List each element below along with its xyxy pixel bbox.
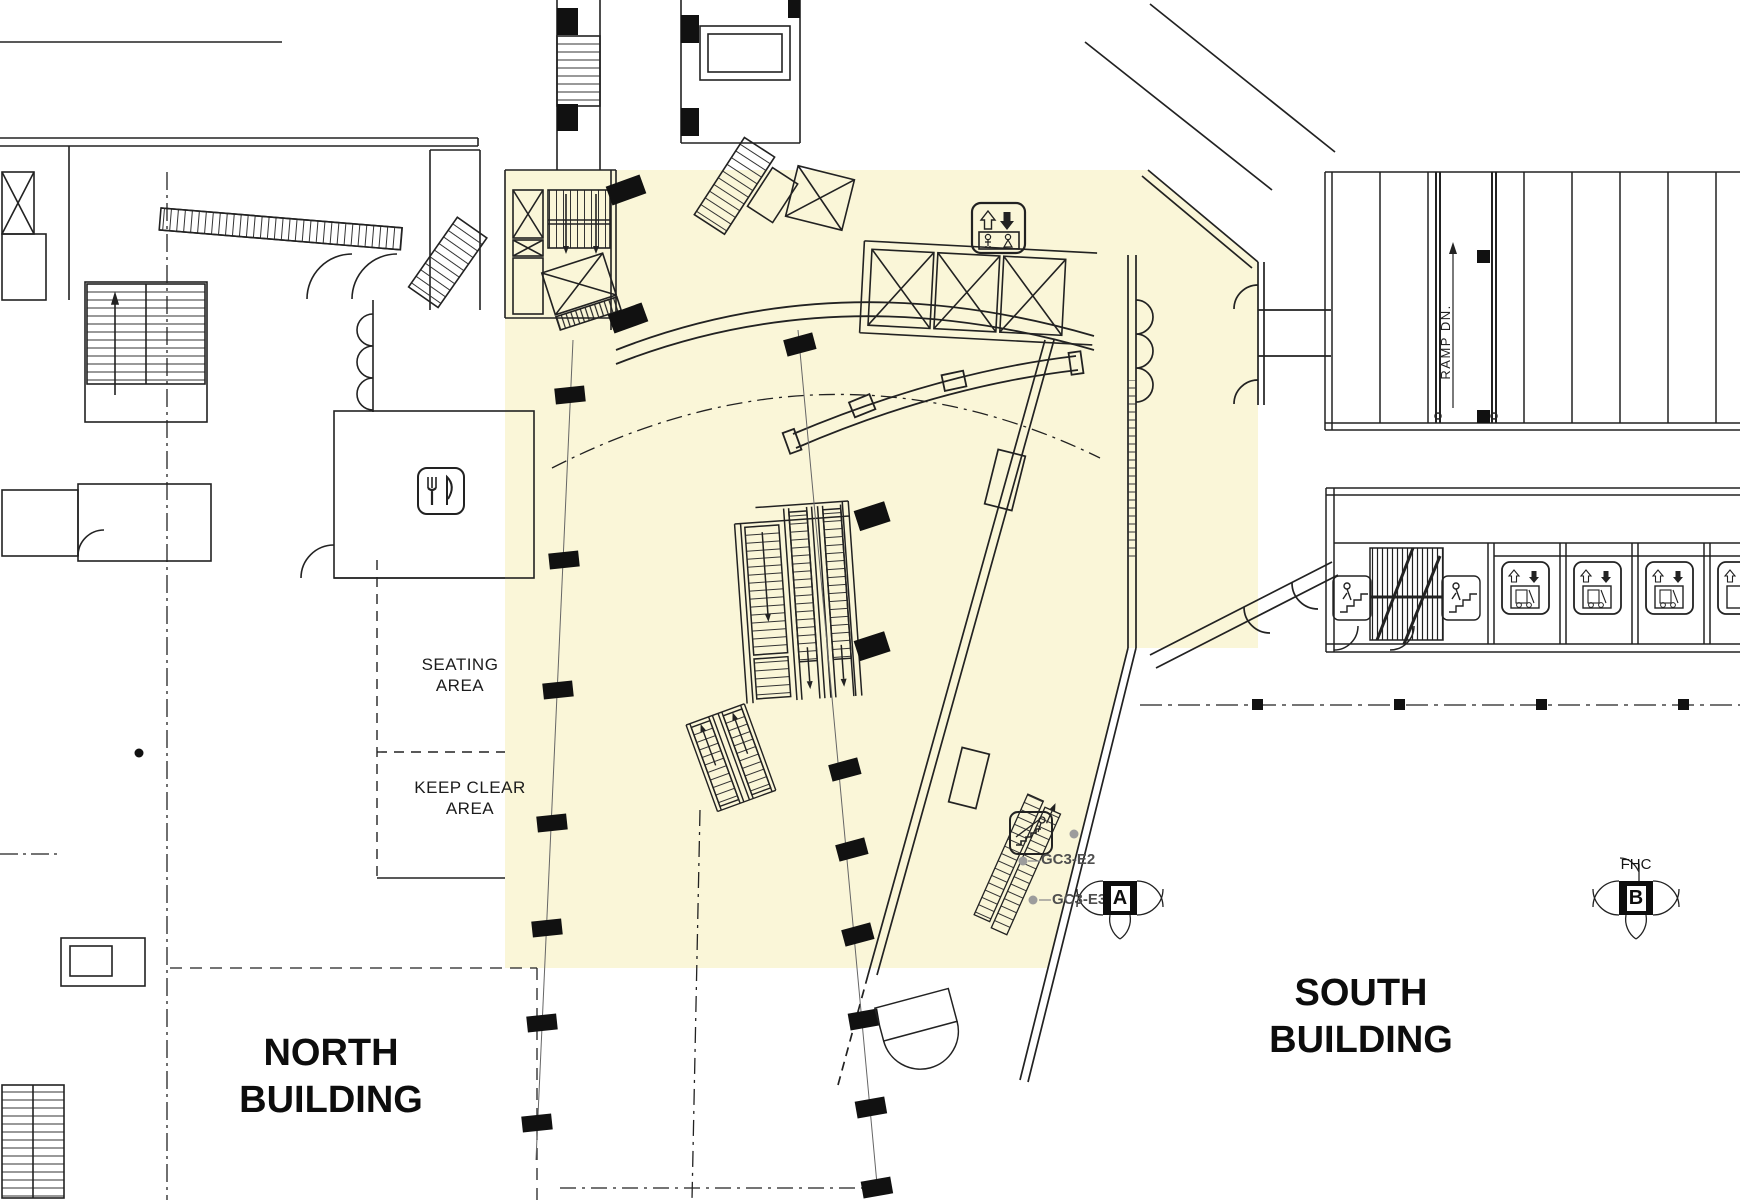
- escalator-id-gc3-e2: GC3-E2: [1041, 851, 1095, 869]
- fire-hose-cabinet-marker-a: A: [1103, 881, 1137, 915]
- marker-b-letter: B: [1627, 886, 1646, 911]
- parking-garage: [1325, 172, 1740, 430]
- seating-area-label: SEATINGAREA: [390, 655, 530, 696]
- restaurant-icon: [418, 468, 464, 514]
- south-elevator-row: [1326, 488, 1740, 652]
- fire-hose-cabinet-marker-b: B: [1619, 881, 1653, 915]
- keep-clear-area-label: KEEP CLEARAREA: [395, 778, 545, 819]
- floor-plan: SEATINGAREA KEEP CLEARAREA NORTHBUILDING…: [0, 0, 1740, 1200]
- escalator-id-gc3-e3: GC3-E3: [1052, 891, 1106, 909]
- entrance-vestibule: [875, 988, 967, 1077]
- floor-plan-drawing: [0, 0, 1740, 1200]
- stair-person-icon: [1333, 576, 1371, 620]
- seating-keep-clear-boxes: [334, 560, 505, 878]
- marker-a-letter: A: [1111, 886, 1130, 911]
- highlight-region: [505, 170, 1258, 968]
- north-building-label: NORTHBUILDING: [216, 1030, 446, 1124]
- stair-person-icon: [1442, 576, 1480, 620]
- ramp-dn-label: RAMP DN.: [1438, 302, 1454, 382]
- column-line-south: [1140, 699, 1740, 710]
- south-building-label: SOUTHBUILDING: [1246, 970, 1476, 1064]
- fhc-label: FHC: [1614, 856, 1658, 874]
- north-building-walls: [0, 42, 534, 1198]
